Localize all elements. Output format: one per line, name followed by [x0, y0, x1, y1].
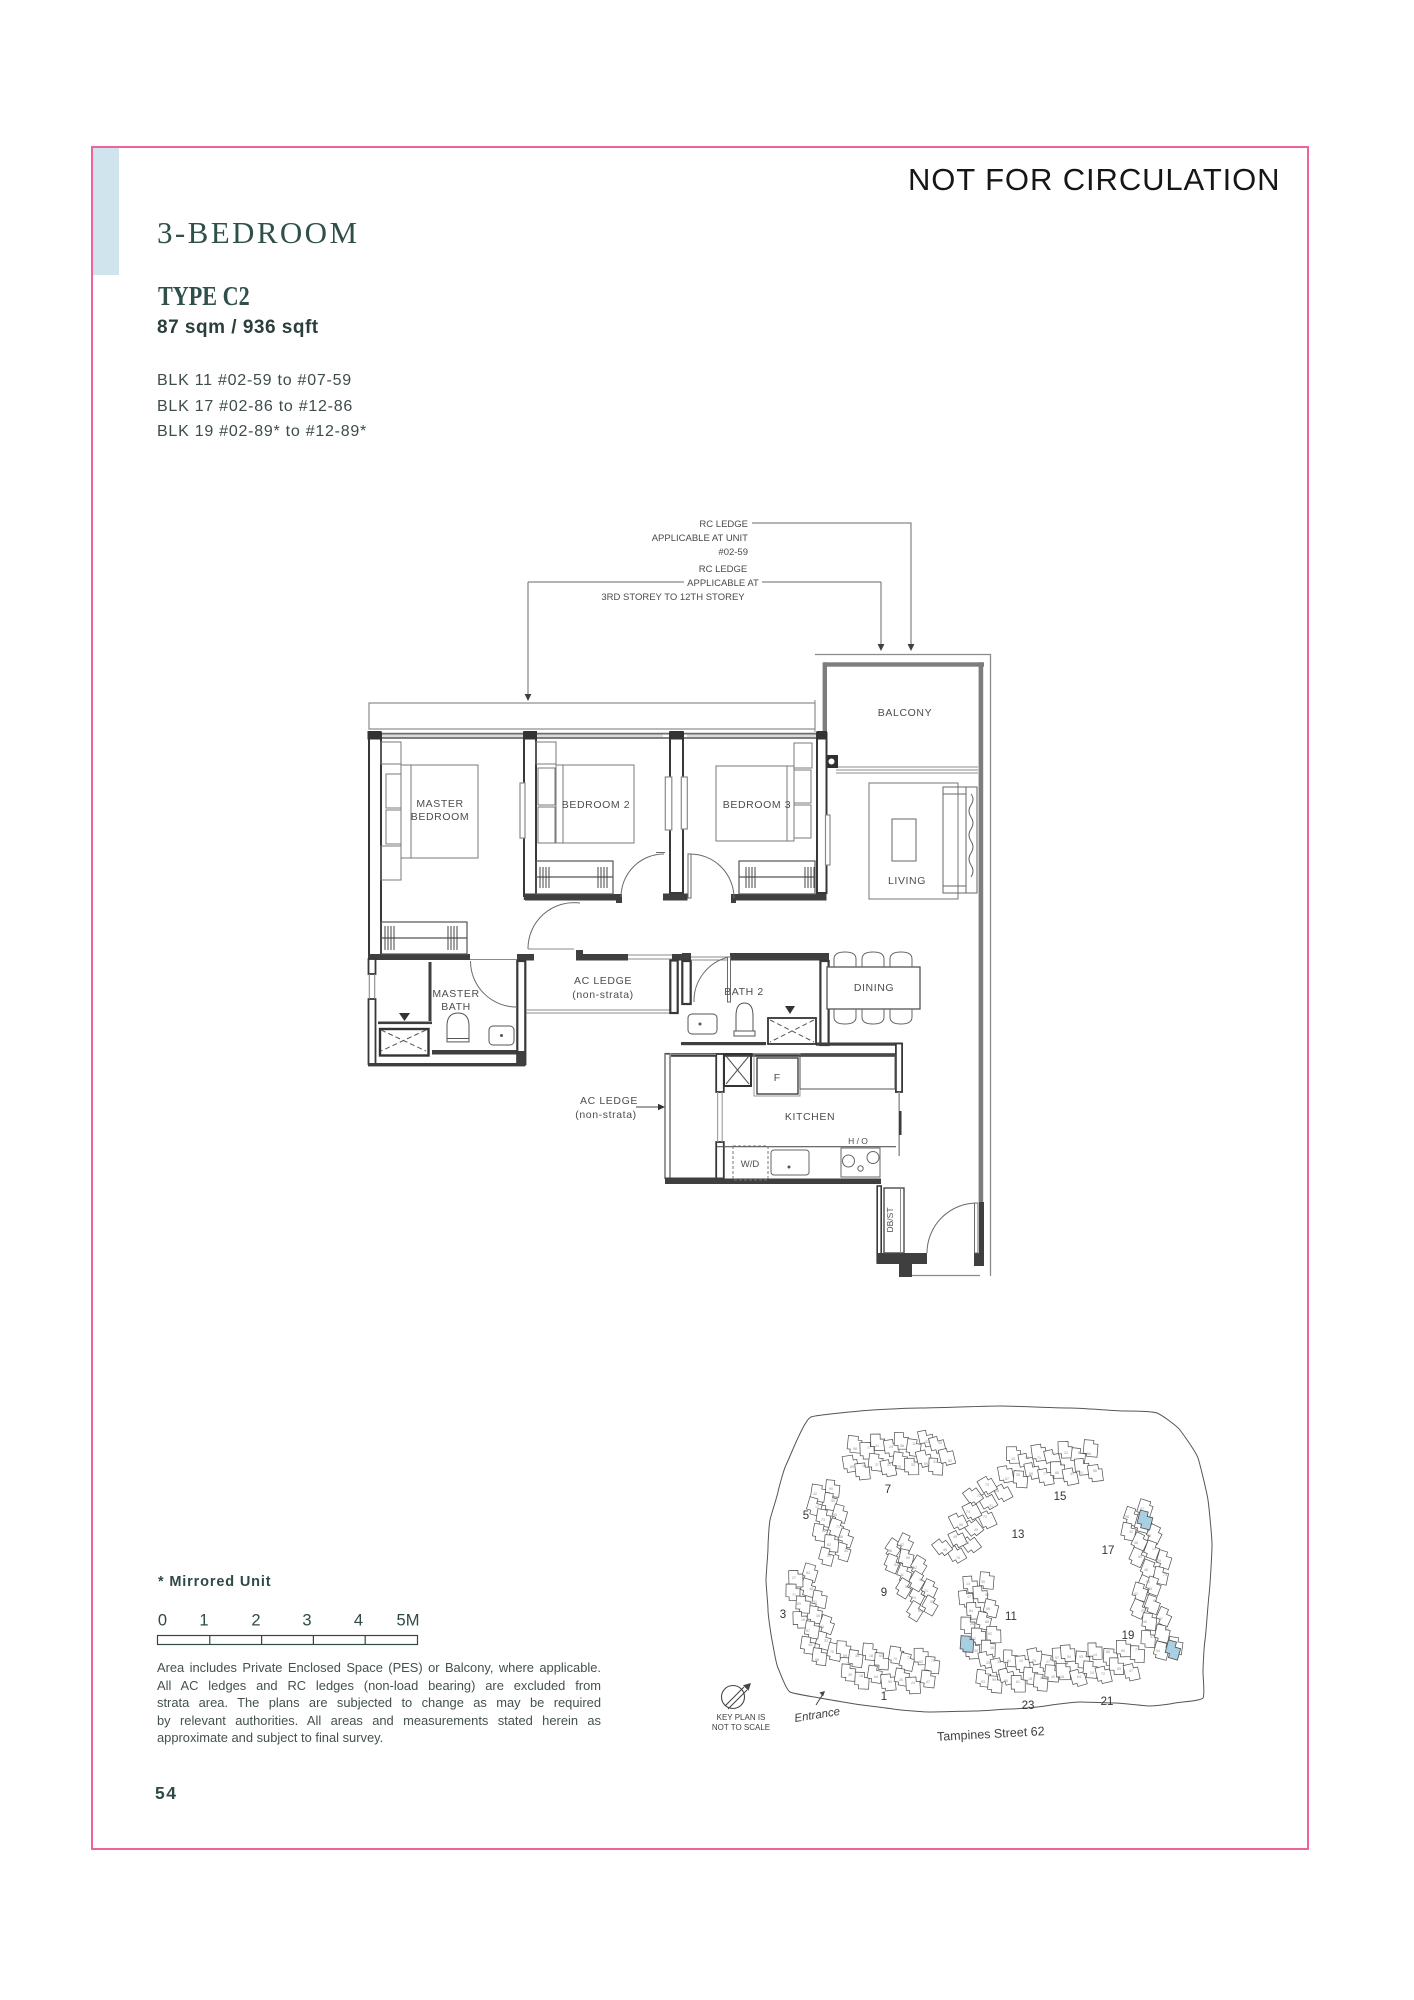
svg-text:5M: 5M	[397, 1612, 420, 1630]
svg-text:18: 18	[869, 1654, 873, 1658]
svg-text:71: 71	[792, 1593, 796, 1597]
svg-text:62: 62	[827, 1543, 831, 1547]
svg-text:35: 35	[816, 1614, 820, 1618]
svg-text:3: 3	[780, 1609, 786, 1621]
svg-text:56: 56	[1093, 1469, 1097, 1473]
svg-text:15: 15	[1054, 1491, 1067, 1503]
svg-text:(non-strata): (non-strata)	[575, 1109, 636, 1121]
svg-text:11: 11	[900, 1573, 904, 1577]
svg-text:23: 23	[1022, 1700, 1035, 1712]
svg-text:71: 71	[907, 1656, 911, 1660]
svg-text:31: 31	[919, 1578, 923, 1582]
svg-text:85: 85	[1148, 1587, 1152, 1591]
svg-text:69: 69	[797, 1602, 801, 1606]
svg-text:3: 3	[302, 1612, 311, 1630]
svg-text:5: 5	[803, 1510, 809, 1522]
svg-text:25: 25	[1141, 1609, 1145, 1613]
svg-text:24: 24	[889, 1445, 893, 1449]
svg-text:67: 67	[1005, 1477, 1009, 1481]
svg-text:Entrance: Entrance	[794, 1706, 841, 1725]
svg-text:28: 28	[995, 1489, 999, 1493]
svg-text:W/D: W/D	[741, 1159, 760, 1170]
svg-text:18: 18	[1025, 1456, 1029, 1460]
svg-text:55: 55	[959, 1523, 963, 1527]
svg-text:90: 90	[833, 1513, 837, 1517]
svg-text:69: 69	[1029, 1472, 1033, 1476]
svg-text:71: 71	[924, 1589, 928, 1593]
svg-text:74: 74	[912, 1596, 916, 1600]
svg-text:58: 58	[900, 1444, 904, 1448]
svg-text:84: 84	[806, 1571, 810, 1575]
svg-text:46: 46	[1144, 1568, 1148, 1572]
svg-text:7: 7	[885, 1484, 891, 1496]
svg-text:57: 57	[806, 1629, 810, 1633]
svg-text:11: 11	[1005, 1611, 1017, 1623]
svg-text:24: 24	[911, 1681, 915, 1685]
svg-text:46: 46	[1143, 1620, 1147, 1624]
svg-text:11: 11	[912, 1442, 916, 1446]
svg-text:14: 14	[966, 1582, 970, 1586]
svg-text:21: 21	[1079, 1471, 1083, 1475]
svg-text:27: 27	[1046, 1660, 1050, 1664]
svg-text:1: 1	[199, 1612, 208, 1630]
svg-text:BEDROOM: BEDROOM	[411, 811, 469, 823]
svg-text:47: 47	[926, 1680, 930, 1684]
svg-text:77: 77	[1135, 1648, 1139, 1652]
svg-text:29: 29	[827, 1554, 831, 1558]
svg-text:73: 73	[821, 1518, 825, 1522]
svg-text:KEY PLAN IS: KEY PLAN IS	[717, 1713, 766, 1722]
svg-text:13: 13	[1012, 1529, 1025, 1541]
svg-text:3RD STOREY TO 12TH STOREY: 3RD STOREY TO 12TH STOREY	[601, 592, 745, 603]
svg-text:40: 40	[1051, 1675, 1055, 1679]
svg-text:0: 0	[158, 1612, 167, 1630]
svg-text:65: 65	[879, 1654, 883, 1658]
svg-text:45: 45	[808, 1643, 812, 1647]
svg-text:72: 72	[1101, 1672, 1105, 1676]
svg-text:KITCHEN: KITCHEN	[785, 1111, 835, 1123]
svg-text:86: 86	[1106, 1650, 1110, 1654]
svg-text:33: 33	[911, 1463, 915, 1467]
svg-text:59: 59	[843, 1654, 847, 1658]
svg-text:45: 45	[1147, 1534, 1151, 1538]
svg-text:BEDROOM 3: BEDROOM 3	[723, 799, 791, 811]
svg-text:33: 33	[824, 1639, 828, 1643]
svg-text:40: 40	[844, 1549, 848, 1553]
svg-text:47: 47	[967, 1595, 971, 1599]
svg-text:48: 48	[1134, 1541, 1138, 1545]
svg-text:45: 45	[943, 1548, 947, 1552]
svg-text:93: 93	[981, 1680, 985, 1684]
svg-text:33: 33	[925, 1440, 929, 1444]
svg-text:30: 30	[1129, 1530, 1133, 1534]
svg-text:19: 19	[1122, 1630, 1135, 1642]
svg-text:F: F	[774, 1072, 780, 1084]
svg-text:35: 35	[855, 1654, 859, 1658]
svg-text:14: 14	[1093, 1653, 1097, 1657]
svg-text:41: 41	[875, 1444, 879, 1448]
svg-text:77: 77	[1043, 1472, 1047, 1476]
svg-text:(non-strata): (non-strata)	[572, 989, 633, 1001]
svg-text:Tampines Street 62: Tampines Street 62	[937, 1724, 1045, 1744]
svg-text:APPLICABLE AT: APPLICABLE AT	[687, 578, 759, 589]
svg-text:99: 99	[992, 1678, 996, 1682]
svg-text:25: 25	[1032, 1659, 1036, 1663]
svg-text:80: 80	[1153, 1599, 1157, 1603]
svg-text:73: 73	[985, 1483, 989, 1487]
svg-text:64: 64	[1165, 1628, 1169, 1632]
svg-text:52: 52	[913, 1566, 917, 1570]
svg-text:19: 19	[1019, 1659, 1023, 1663]
svg-text:18: 18	[859, 1674, 863, 1678]
svg-text:MASTER: MASTER	[416, 798, 463, 810]
svg-text:26: 26	[970, 1622, 974, 1626]
svg-text:53: 53	[894, 1563, 898, 1567]
svg-text:48: 48	[809, 1587, 813, 1591]
svg-text:89: 89	[1117, 1667, 1121, 1671]
svg-text:62: 62	[900, 1543, 904, 1547]
svg-text:45: 45	[974, 1528, 978, 1532]
svg-text:89: 89	[850, 1465, 854, 1469]
svg-text:64: 64	[874, 1675, 878, 1679]
svg-text:82: 82	[822, 1529, 826, 1533]
svg-text:51: 51	[905, 1585, 909, 1589]
svg-text:47: 47	[1129, 1669, 1133, 1673]
svg-text:30: 30	[997, 1660, 1001, 1664]
svg-text:17: 17	[815, 1505, 819, 1509]
svg-text:99: 99	[829, 1487, 833, 1491]
svg-text:93: 93	[1079, 1655, 1083, 1659]
svg-text:47: 47	[1070, 1472, 1074, 1476]
svg-text:16: 16	[1060, 1675, 1064, 1679]
svg-text:52: 52	[919, 1660, 923, 1664]
svg-text:84: 84	[969, 1609, 973, 1613]
svg-text:4: 4	[354, 1612, 363, 1630]
svg-text:54: 54	[918, 1609, 922, 1613]
svg-text:29: 29	[1157, 1559, 1161, 1563]
svg-text:35: 35	[1016, 1473, 1020, 1477]
svg-text:33: 33	[986, 1661, 990, 1665]
svg-text:54: 54	[985, 1593, 989, 1597]
svg-text:DINING: DINING	[854, 982, 894, 994]
svg-text:91: 91	[813, 1600, 817, 1604]
svg-text:61: 61	[1078, 1451, 1082, 1455]
svg-text:78: 78	[956, 1556, 960, 1560]
svg-text:30: 30	[974, 1649, 978, 1653]
svg-text:RC LEDGE: RC LEDGE	[699, 519, 748, 530]
svg-text:17: 17	[1102, 1545, 1115, 1557]
svg-text:H / O: H / O	[848, 1136, 868, 1146]
svg-text:BATH: BATH	[441, 1001, 471, 1013]
svg-text:58: 58	[1125, 1515, 1129, 1519]
svg-text:46: 46	[1040, 1676, 1044, 1680]
svg-text:AC LEDGE: AC LEDGE	[574, 975, 632, 987]
svg-text:70: 70	[830, 1650, 834, 1654]
svg-text:19: 19	[801, 1618, 805, 1622]
svg-text:18: 18	[1028, 1677, 1032, 1681]
svg-text:30: 30	[938, 1441, 942, 1445]
svg-text:59: 59	[1067, 1655, 1071, 1659]
svg-text:RC LEDGE: RC LEDGE	[699, 564, 748, 575]
svg-text:42: 42	[813, 1492, 817, 1496]
svg-text:54: 54	[1156, 1649, 1160, 1653]
svg-text:AC LEDGE: AC LEDGE	[580, 1095, 638, 1107]
svg-text:52: 52	[948, 1459, 952, 1463]
svg-text:25: 25	[899, 1678, 903, 1682]
svg-text:27: 27	[792, 1576, 796, 1580]
svg-text:24: 24	[1090, 1671, 1094, 1675]
svg-text:99: 99	[888, 1680, 892, 1684]
svg-text:12: 12	[1064, 1451, 1068, 1455]
svg-text:86: 86	[839, 1535, 843, 1539]
svg-text:LIVING: LIVING	[888, 875, 926, 887]
svg-text:1: 1	[881, 1691, 887, 1703]
svg-text:72: 72	[983, 1515, 987, 1519]
svg-text:92: 92	[1134, 1592, 1138, 1596]
svg-text:77: 77	[867, 1446, 871, 1450]
svg-text:70: 70	[893, 1657, 897, 1661]
svg-text:88: 88	[985, 1620, 989, 1624]
svg-text:79: 79	[897, 1465, 901, 1469]
svg-text:BALCONY: BALCONY	[878, 707, 932, 719]
svg-text:70: 70	[1051, 1452, 1055, 1456]
svg-text:38: 38	[990, 1646, 994, 1650]
svg-text:71: 71	[1037, 1456, 1041, 1460]
svg-text:69: 69	[1121, 1649, 1125, 1653]
svg-text:NOT TO SCALE: NOT TO SCALE	[712, 1723, 770, 1732]
svg-text:MASTER: MASTER	[432, 988, 479, 1000]
svg-text:28: 28	[965, 1541, 969, 1545]
svg-text:79: 79	[931, 1659, 935, 1663]
svg-text:96: 96	[1004, 1679, 1008, 1683]
svg-text:BATH 2: BATH 2	[724, 986, 764, 998]
svg-text:81: 81	[1007, 1659, 1011, 1663]
svg-text:97: 97	[1159, 1617, 1163, 1621]
svg-text:DB/ST: DB/ST	[885, 1207, 895, 1232]
svg-text:59: 59	[924, 1462, 928, 1466]
svg-text:98: 98	[815, 1658, 819, 1662]
svg-text:50: 50	[1138, 1555, 1142, 1559]
svg-text:10: 10	[862, 1464, 866, 1468]
svg-text:73: 73	[1163, 1573, 1167, 1577]
svg-text:31: 31	[933, 1460, 937, 1464]
svg-text:#02-59: #02-59	[718, 547, 748, 558]
svg-text:58: 58	[986, 1607, 990, 1611]
svg-text:50: 50	[831, 1499, 835, 1503]
svg-text:94: 94	[1146, 1580, 1150, 1584]
svg-text:2: 2	[251, 1612, 260, 1630]
svg-text:35: 35	[981, 1580, 985, 1584]
svg-text:72: 72	[977, 1494, 981, 1498]
svg-text:98: 98	[888, 1549, 892, 1553]
svg-text:95: 95	[930, 1600, 934, 1604]
svg-text:74: 74	[966, 1510, 970, 1514]
svg-text:85: 85	[1055, 1471, 1059, 1475]
svg-text:31: 31	[989, 1504, 993, 1508]
svg-text:82: 82	[988, 1632, 992, 1636]
svg-text:49: 49	[953, 1535, 957, 1539]
svg-text:47: 47	[1150, 1635, 1154, 1639]
svg-text:21: 21	[1101, 1696, 1114, 1708]
svg-text:97: 97	[1055, 1656, 1059, 1660]
svg-text:39: 39	[848, 1673, 852, 1677]
svg-text:64: 64	[1077, 1675, 1081, 1679]
svg-text:9: 9	[881, 1587, 887, 1599]
svg-text:APPLICABLE AT UNIT: APPLICABLE AT UNIT	[652, 533, 748, 544]
svg-text:81: 81	[1016, 1680, 1020, 1684]
svg-text:98: 98	[906, 1556, 910, 1560]
svg-text:BEDROOM 2: BEDROOM 2	[562, 799, 630, 811]
svg-text:71: 71	[836, 1525, 840, 1529]
svg-text:37: 37	[875, 1463, 879, 1467]
svg-text:31: 31	[887, 1463, 891, 1467]
svg-text:56: 56	[1087, 1452, 1091, 1456]
svg-text:14: 14	[1152, 1547, 1156, 1551]
svg-text:93: 93	[820, 1625, 824, 1629]
svg-text:98: 98	[853, 1447, 857, 1451]
svg-text:10: 10	[1011, 1457, 1015, 1461]
